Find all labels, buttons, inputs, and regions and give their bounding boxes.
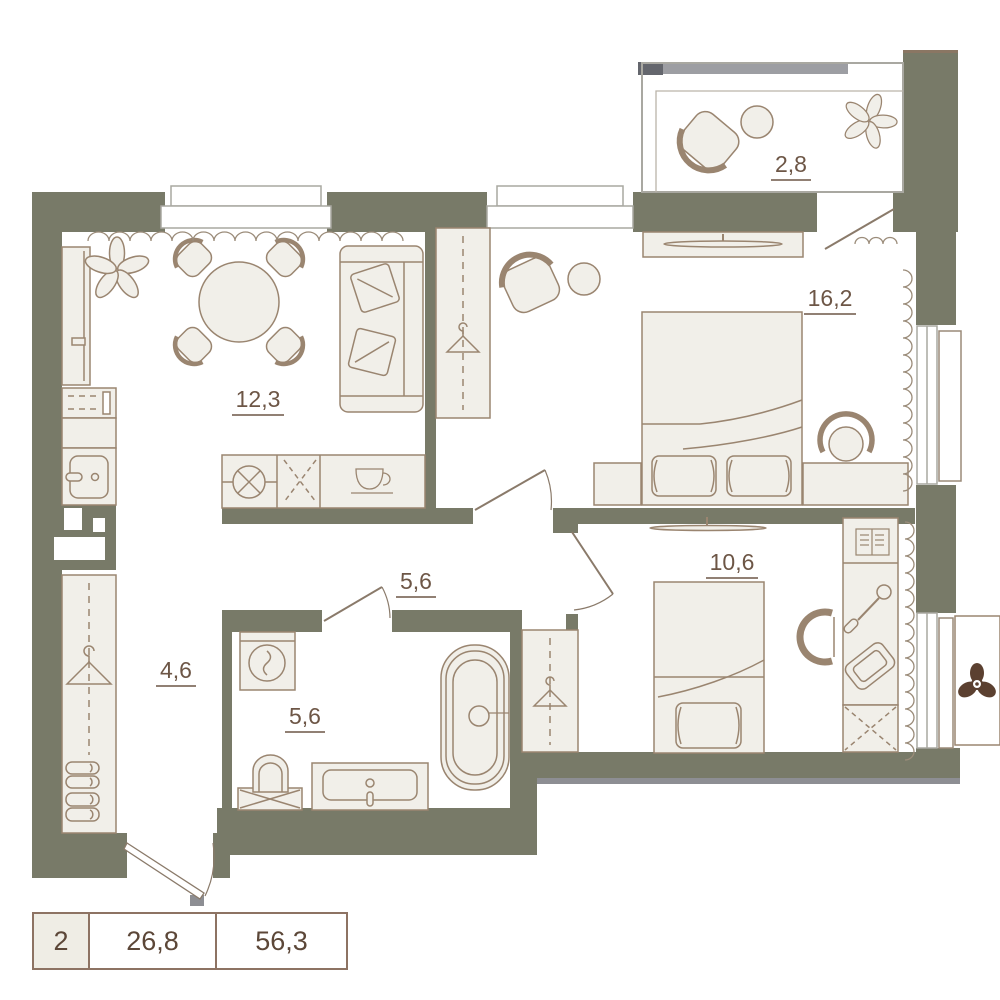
label-balcony: 2,8 [775, 151, 807, 177]
door-bedroom1 [475, 470, 551, 510]
kitchen-sink-icon [62, 448, 116, 505]
label-bedroom1: 16,2 [808, 285, 853, 311]
radiator-bedroom1 [903, 270, 912, 491]
stove-icon [62, 388, 116, 418]
pillow [676, 703, 741, 748]
pillow [652, 456, 716, 496]
tv-console-bedroom1 [643, 232, 803, 257]
label-corridor: 4,6 [160, 657, 192, 683]
legend-table: 2 26,8 56,3 [32, 912, 348, 970]
wardrobe-bedroom1 [436, 228, 490, 418]
legend-living-area: 26,8 [90, 914, 217, 968]
radiator-bedroom2 [905, 522, 914, 760]
label-bathroom: 5,6 [289, 703, 321, 729]
curtain-living [88, 232, 403, 241]
kitchen-counter-left [62, 418, 116, 448]
book-icon [856, 529, 889, 555]
floor-plan: 12,3 16,2 10,6 5,6 5,6 4,6 2,8 2 26,8 56… [0, 0, 1000, 1000]
window-living [161, 186, 331, 228]
balcony-chair [669, 105, 746, 181]
plant-icon [83, 237, 150, 301]
nightstand-left [594, 463, 641, 505]
label-hallway: 5,6 [400, 568, 432, 594]
floor-plan-drawing: 12,3 16,2 10,6 5,6 5,6 4,6 2,8 [0, 0, 1000, 1000]
kitchen-counter-bottom [222, 455, 425, 508]
pillow [727, 456, 791, 496]
desk-bedroom2 [843, 518, 898, 752]
label-living-kitchen: 12,3 [236, 386, 281, 412]
door-bedroom2 [572, 532, 613, 610]
sofa-icon [340, 246, 423, 412]
kitchen-tall-unit [62, 247, 90, 385]
window-bedroom2-right [917, 613, 953, 748]
washing-machine-icon [240, 632, 295, 690]
bathtub-icon [441, 645, 509, 790]
ac-unit [955, 616, 1000, 745]
legend-total-area: 56,3 [217, 914, 346, 968]
bed-single-icon [654, 582, 764, 753]
round-chair-bedroom1 [820, 414, 872, 461]
bed-double-icon [642, 312, 802, 505]
plant-icon-balcony [842, 92, 897, 149]
radiator-balcony-door [855, 238, 897, 244]
window-bedroom1-right [917, 326, 961, 484]
bench-right [803, 463, 908, 505]
desk-chair-bedroom2 [800, 612, 834, 662]
door-entrance [124, 843, 214, 899]
vanity-sink-icon [312, 763, 428, 810]
door-bathroom [324, 587, 390, 621]
wardrobe-between-bath-bedroom2 [522, 630, 578, 752]
balcony-table [741, 106, 773, 138]
wardrobe-corridor [62, 575, 116, 833]
label-bedroom2: 10,6 [710, 549, 755, 575]
legend-rooms-count: 2 [34, 914, 90, 968]
armchair-bedroom1 [494, 246, 566, 317]
toilet-icon [238, 755, 302, 810]
cabinet-x [843, 705, 898, 752]
window-bedroom1-top [487, 186, 633, 228]
dining-table [199, 262, 279, 342]
side-table-bedroom1 [568, 263, 600, 295]
